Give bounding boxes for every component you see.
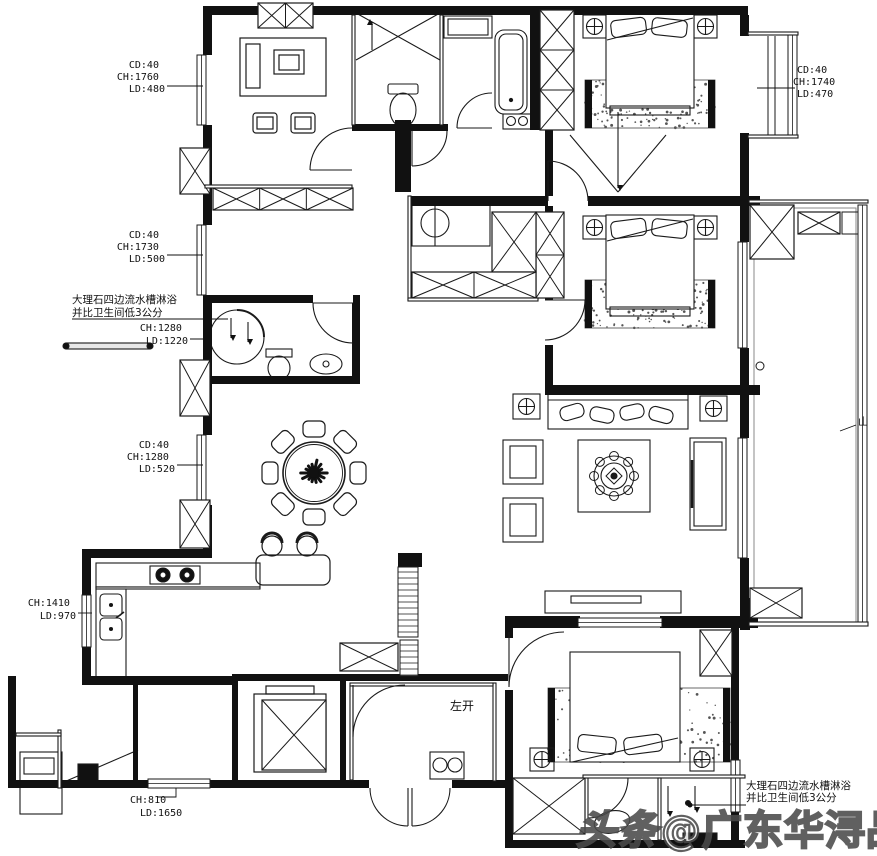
shafts bbox=[398, 567, 418, 676]
counter-top bbox=[96, 563, 260, 587]
bar-counter bbox=[256, 533, 330, 585]
annotation-marble-left: 大理石四边流水槽淋浴 并比卫生间低3公分 bbox=[72, 293, 180, 319]
annotation-window-mid-left: CD:40 CH:1730 LD:500 bbox=[117, 230, 165, 265]
annotation-window-dining: CD:40 CH:1280 LD:520 bbox=[127, 440, 175, 475]
armchair bbox=[503, 498, 543, 542]
bar-stool bbox=[297, 536, 317, 556]
cushion bbox=[619, 403, 645, 422]
tv-console bbox=[690, 438, 726, 530]
watermark: 头条@广东华浔品味装饰 bbox=[576, 798, 877, 856]
study-room-furniture bbox=[240, 38, 326, 133]
diagonal bbox=[64, 750, 138, 782]
annotation-door-left-open: 左开 bbox=[450, 698, 474, 713]
kitchen bbox=[96, 563, 260, 683]
bathroom-tub bbox=[444, 16, 531, 129]
sink bbox=[310, 354, 342, 374]
living-room bbox=[503, 393, 727, 613]
bay-window bbox=[768, 36, 775, 136]
watermark-text: @广东华浔品味装饰 bbox=[661, 808, 877, 854]
floor-plan-canvas: CD:40 CH:1760 LD:480 CD:40 CH:1730 LD:50… bbox=[0, 0, 877, 856]
tv bbox=[571, 596, 641, 603]
balcony-right bbox=[754, 208, 864, 622]
low-cabinet bbox=[545, 591, 681, 613]
watermark-logo: 头条 bbox=[576, 808, 658, 854]
floor-plan-page: { "annotations": [ {"id":"window-top-lef… bbox=[0, 0, 877, 856]
grab-bar bbox=[66, 343, 150, 349]
annotation-shower-left: CH:1280 LD:1220 bbox=[140, 323, 188, 347]
cushion bbox=[559, 402, 586, 422]
bed bbox=[606, 215, 694, 309]
annotation-kitchen-window: CH:1410 LD:970 bbox=[28, 598, 76, 622]
annotation-right-edge: 山 bbox=[858, 416, 869, 428]
annotation-bottom-window: CH:810 LD:1650 bbox=[130, 795, 182, 819]
bed bbox=[570, 652, 680, 762]
cushion bbox=[589, 406, 615, 425]
cushion bbox=[648, 405, 675, 425]
dining-table bbox=[262, 421, 366, 525]
bar-stool bbox=[262, 536, 282, 556]
armchair bbox=[503, 440, 543, 484]
annotation-window-top-left: CD:40 CH:1760 LD:480 bbox=[117, 60, 165, 95]
bed bbox=[606, 14, 694, 108]
bathroom-a bbox=[356, 13, 440, 127]
entry-foyer bbox=[430, 752, 464, 779]
annotation-window-top-right: CD:40 CH:1740 LD:470 bbox=[793, 65, 841, 100]
basin-counter bbox=[503, 114, 531, 129]
closet-basin bbox=[412, 200, 490, 246]
